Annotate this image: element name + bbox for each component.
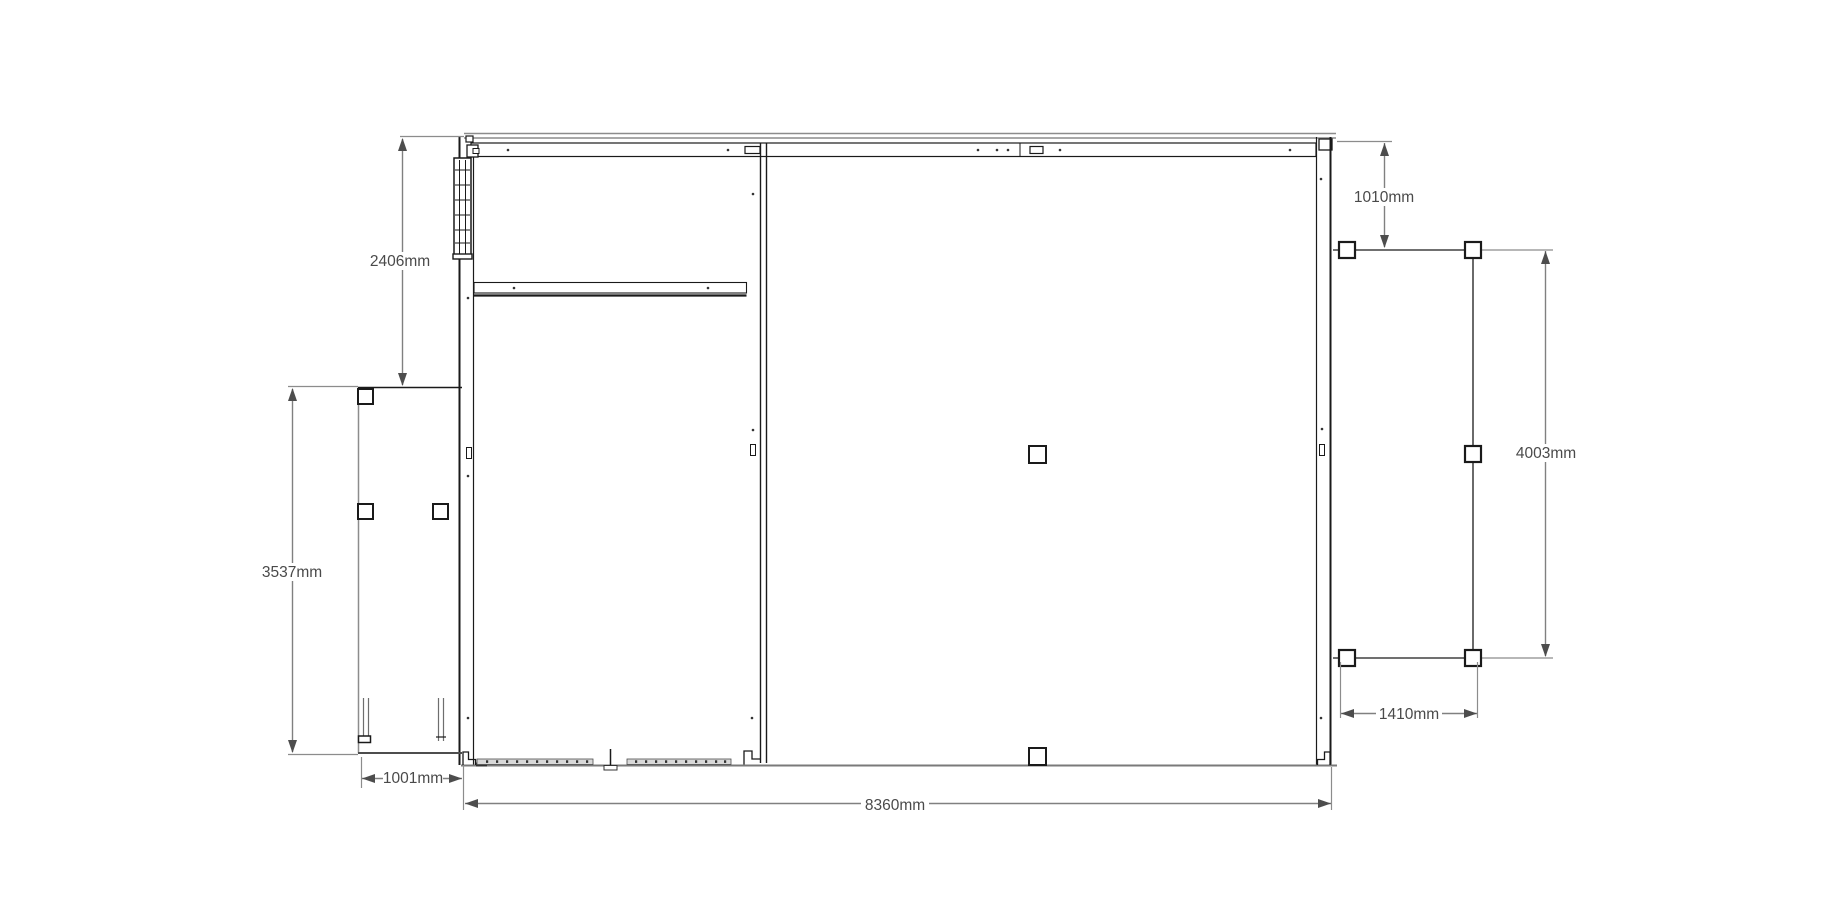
- post-marker: [433, 504, 448, 519]
- screw-dot: [513, 287, 516, 290]
- arrow-right-icon: [449, 774, 462, 783]
- top-wall-band: [471, 143, 1316, 157]
- post-marker: [1339, 650, 1355, 666]
- dimension-label: 1010mm: [1354, 189, 1414, 206]
- left-structure-posts: [364, 698, 444, 741]
- wall-screw-dots: [467, 178, 1324, 720]
- arrow-down-icon: [288, 740, 297, 753]
- sill-strip: [477, 759, 593, 765]
- screw-dot: [977, 149, 980, 152]
- dimension-label: 1410mm: [1379, 706, 1439, 723]
- top-band-connector-plate: [1030, 147, 1043, 154]
- arrow-down-icon: [1380, 235, 1389, 248]
- post-marker: [358, 504, 373, 519]
- arrow-up-icon: [398, 138, 407, 151]
- arrow-down-icon: [1541, 644, 1550, 657]
- left-attached-structure: [358, 387, 462, 753]
- dimension-left-upper-height: 2406mm: [367, 137, 464, 387]
- screw-dot: [1007, 149, 1010, 152]
- floor-plan-drawing: 2406mm 3537mm 1001mm 8360mm 1010mm: [0, 0, 1838, 920]
- wall-bracket: [751, 445, 756, 456]
- window-sill-cap: [453, 254, 472, 259]
- arrow-up-icon: [1541, 251, 1550, 264]
- post-foot-cap: [359, 736, 371, 743]
- arrow-down-icon: [398, 373, 407, 386]
- screw-dot: [996, 149, 999, 152]
- left-wall-window: [453, 158, 472, 259]
- bottom-sill-track: [477, 749, 731, 770]
- arrow-left-icon: [465, 799, 478, 808]
- post-marker: [358, 389, 373, 404]
- screw-dot: [752, 429, 755, 432]
- dimension-label: 2406mm: [370, 253, 430, 270]
- top-band-connector-plate: [745, 147, 760, 154]
- wall-connectors: [467, 178, 1325, 720]
- dimension-main-bottom-width: 8360mm: [465, 767, 1332, 814]
- main-building: [453, 134, 1337, 771]
- arrow-right-icon: [1318, 799, 1331, 808]
- door-jamb-foot: [604, 766, 617, 771]
- screw-dot: [467, 475, 470, 478]
- screw-dot: [752, 193, 755, 196]
- screw-dot: [467, 297, 470, 300]
- screw-dot: [507, 149, 510, 152]
- arrow-left-icon: [1341, 709, 1354, 718]
- screw-dot: [751, 717, 754, 720]
- interior-wall-foot-notch: [744, 751, 760, 765]
- wall-bracket: [1320, 445, 1325, 456]
- screw-dot: [1059, 149, 1062, 152]
- dimension-left-structure-height: 3537mm: [259, 387, 358, 755]
- wall-bracket: [467, 448, 472, 459]
- corner-bracket-notch: [473, 149, 479, 154]
- floor-plan-canvas: 2406mm 3537mm 1001mm 8360mm 1010mm: [0, 0, 1838, 920]
- dimension-label: 8360mm: [865, 797, 925, 814]
- arrow-up-icon: [288, 388, 297, 401]
- screw-dot: [1289, 149, 1292, 152]
- dimension-left-structure-width: 1001mm: [362, 757, 464, 810]
- post-marker: [1465, 242, 1481, 258]
- corner-tab: [466, 136, 473, 142]
- interior-divider-band: [474, 283, 747, 296]
- dimension-label: 3537mm: [262, 564, 322, 581]
- center-post: [1029, 446, 1046, 463]
- dimension-right-structure-height: 4003mm: [1513, 251, 1579, 657]
- dimension-label: 1001mm: [383, 770, 443, 787]
- arrow-left-icon: [362, 774, 375, 783]
- screw-dot: [707, 287, 710, 290]
- screw-dot: [1321, 428, 1324, 431]
- screw-dot: [467, 717, 470, 720]
- window-frame: [454, 158, 471, 256]
- screw-dot: [727, 149, 730, 152]
- dimension-right-structure-width: 1410mm: [1341, 662, 1478, 723]
- arrow-right-icon: [1464, 709, 1477, 718]
- post-marker: [1465, 446, 1481, 462]
- bottom-right-corner-notch: [1318, 752, 1331, 765]
- screw-dot: [1320, 717, 1323, 720]
- post-marker: [1339, 242, 1355, 258]
- dimension-label: 4003mm: [1516, 445, 1576, 462]
- arrow-up-icon: [1380, 143, 1389, 156]
- post-marker: [1465, 650, 1481, 666]
- screw-dot: [1320, 178, 1323, 181]
- dimension-right-top-offset: 1010mm: [1337, 142, 1417, 249]
- bottom-wall-post: [1029, 748, 1046, 765]
